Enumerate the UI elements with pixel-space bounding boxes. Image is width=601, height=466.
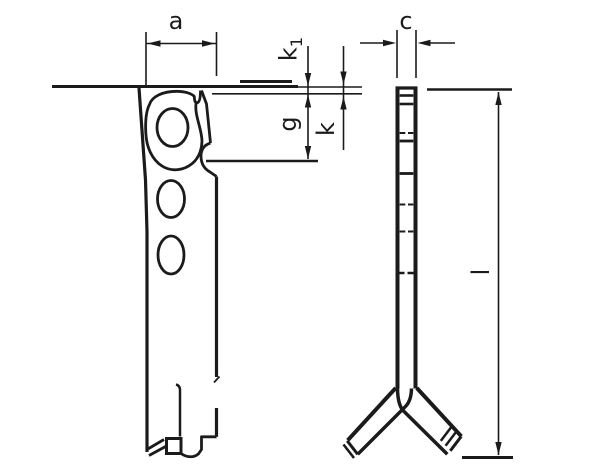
hook-outline: [146, 91, 202, 170]
dim-label-c-text: c: [399, 7, 412, 35]
edge-break-tick: [214, 377, 220, 383]
k-arrow-down: [340, 72, 346, 85]
dim-label-a-text: a: [169, 7, 184, 35]
dim-label-k: k: [314, 122, 338, 136]
a-arrow-right: [202, 40, 215, 46]
blade-right-edge-upper: [202, 91, 211, 144]
l-arrow-down: [495, 442, 501, 455]
k-arrow-up: [340, 97, 346, 110]
drawing-canvas: [0, 0, 601, 466]
dim-label-k1: k1: [276, 37, 305, 61]
c-arrow-right: [418, 40, 431, 46]
k1-arrow-down: [305, 73, 311, 86]
left-leg-outer-edge: [348, 388, 396, 440]
tip-square: [167, 439, 182, 454]
l-arrow-up: [495, 92, 501, 105]
dim-label-k1-sub: 1: [287, 37, 306, 47]
twist-edge-line: [176, 385, 180, 437]
hole-bottom: [158, 236, 184, 274]
c-arrow-left: [383, 40, 396, 46]
g-arrow-down: [305, 146, 311, 159]
dimension-k: [340, 46, 346, 150]
hole-middle: [158, 181, 185, 218]
g-arrow-up: [305, 95, 311, 108]
dimension-k1-g: [305, 46, 311, 159]
front-view: [52, 82, 362, 457]
dim-label-a: a: [169, 9, 184, 33]
right-leg-inner-edge: [398, 389, 448, 455]
dim-label-k-text: k: [312, 122, 340, 136]
dim-label-g-text: g: [274, 116, 302, 131]
tip-right-contour: [181, 437, 217, 457]
hole-top: [157, 109, 188, 147]
dimension-c: [360, 30, 455, 78]
a-arrow-left: [148, 40, 161, 46]
technical-drawing: a c k1 g k l: [0, 0, 601, 466]
dim-label-k1-base: k: [274, 47, 302, 61]
dimension-a: [146, 32, 217, 88]
dim-label-l: l: [469, 269, 493, 276]
dim-label-c: c: [399, 9, 412, 33]
dim-label-g: g: [276, 116, 300, 131]
dim-label-l-text: l: [467, 269, 495, 276]
side-view: [344, 88, 462, 458]
